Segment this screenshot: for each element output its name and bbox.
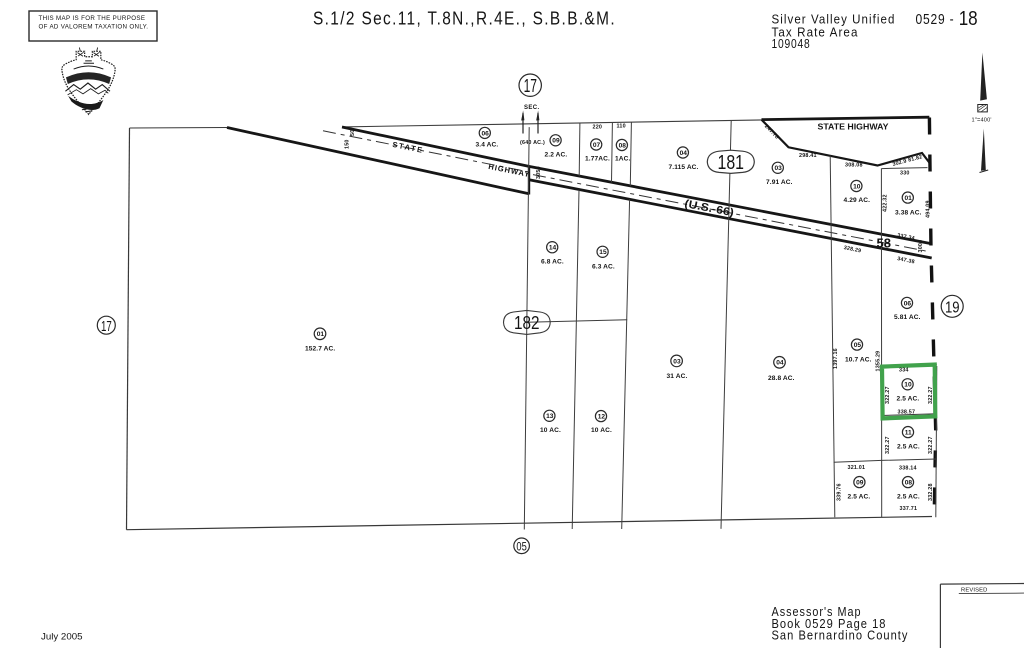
svg-text:15: 15: [599, 249, 607, 256]
svg-text:1397.16: 1397.16: [833, 348, 839, 369]
svg-text:109048: 109048: [772, 36, 811, 51]
svg-text:181: 181: [718, 151, 745, 174]
svg-text:05: 05: [854, 342, 862, 349]
svg-text:14: 14: [549, 245, 557, 252]
svg-text:7.91 AC.: 7.91 AC.: [766, 179, 793, 186]
svg-text:298.41: 298.41: [799, 153, 817, 159]
svg-text:2.5 AC.: 2.5 AC.: [848, 493, 871, 500]
svg-text:322.27: 322.27: [928, 436, 934, 454]
svg-text:4.29 AC.: 4.29 AC.: [844, 197, 871, 204]
svg-text:01: 01: [317, 331, 325, 338]
svg-text:11: 11: [905, 430, 912, 437]
svg-text:04: 04: [776, 360, 784, 367]
svg-text:5.81 AC.: 5.81 AC.: [894, 314, 921, 321]
svg-text:San Bernardino County: San Bernardino County: [772, 628, 909, 643]
svg-text:322.27: 322.27: [885, 436, 891, 454]
svg-text:7.115 AC.: 7.115 AC.: [669, 164, 699, 171]
svg-text:THIS MAP IS FOR THE PURPOSE: THIS MAP IS FOR THE PURPOSE: [39, 15, 146, 22]
svg-text:338.57: 338.57: [898, 410, 916, 416]
svg-text:17: 17: [101, 318, 112, 335]
svg-text:28.8 AC.: 28.8 AC.: [768, 375, 795, 382]
svg-text:06: 06: [904, 300, 912, 307]
svg-text:2.5 AC.: 2.5 AC.: [897, 395, 920, 402]
svg-text:182: 182: [514, 313, 540, 333]
svg-text:2.5 AC.: 2.5 AC.: [897, 443, 920, 450]
svg-text:339.76: 339.76: [837, 483, 843, 501]
svg-text:0529 -: 0529 -: [916, 11, 955, 28]
svg-text:04: 04: [680, 150, 688, 157]
svg-text:330: 330: [900, 171, 910, 177]
svg-text:50: 50: [350, 130, 356, 136]
svg-text:10 AC.: 10 AC.: [540, 427, 561, 434]
svg-text:321.01: 321.01: [848, 465, 866, 471]
svg-text:322.27: 322.27: [885, 386, 891, 404]
svg-text:1AC.: 1AC.: [615, 155, 630, 162]
svg-text:337.71: 337.71: [900, 506, 918, 512]
svg-text:17: 17: [524, 76, 537, 96]
svg-text:1.77AC.: 1.77AC.: [585, 155, 610, 162]
svg-text:338.14: 338.14: [899, 466, 917, 472]
svg-text:332.28: 332.28: [928, 483, 934, 501]
svg-text:6.3 AC.: 6.3 AC.: [592, 263, 615, 270]
svg-text:S.1/2 Sec.11, T.8N.,R.4E., S.B: S.1/2 Sec.11, T.8N.,R.4E., S.B.B.&M.: [313, 9, 616, 29]
svg-text:10.7 AC.: 10.7 AC.: [845, 356, 872, 363]
svg-text:3006: 3006: [918, 240, 924, 253]
svg-text:308.08: 308.08: [845, 163, 863, 169]
svg-text:1"=400': 1"=400': [972, 117, 992, 123]
svg-text:09: 09: [856, 480, 864, 487]
svg-text:06: 06: [482, 130, 490, 137]
svg-text:3050: 3050: [536, 166, 542, 179]
svg-text:152.7 AC.: 152.7 AC.: [305, 346, 335, 353]
svg-text:13: 13: [546, 413, 554, 420]
svg-text:10: 10: [853, 183, 861, 190]
svg-text:150: 150: [345, 139, 351, 149]
svg-text:STATE HIGHWAY: STATE HIGHWAY: [818, 123, 890, 132]
svg-text:110: 110: [617, 124, 626, 130]
svg-text:08: 08: [619, 142, 627, 149]
svg-text:18: 18: [959, 7, 978, 30]
svg-text:334: 334: [899, 368, 909, 374]
svg-text:REVISED: REVISED: [961, 587, 988, 593]
svg-text:494.09: 494.09: [926, 200, 932, 218]
svg-text:07: 07: [593, 142, 601, 149]
svg-text:OF AD VALOREM TAXATION ONLY.: OF AD VALOREM TAXATION ONLY.: [39, 24, 149, 31]
svg-text:2.5 AC.: 2.5 AC.: [897, 493, 920, 500]
svg-text:6.8 AC.: 6.8 AC.: [541, 258, 564, 265]
svg-text:03: 03: [775, 165, 783, 172]
svg-text:31 AC.: 31 AC.: [667, 373, 688, 380]
svg-text:58: 58: [877, 236, 891, 251]
svg-text:220: 220: [593, 125, 603, 131]
svg-text:09: 09: [552, 138, 560, 145]
svg-text:3.4 AC.: 3.4 AC.: [476, 142, 499, 149]
svg-text:SEC.: SEC.: [524, 105, 540, 111]
svg-text:2.2 AC.: 2.2 AC.: [545, 152, 568, 159]
svg-text:10: 10: [904, 382, 912, 389]
svg-text:12: 12: [598, 414, 606, 421]
svg-text:July 2005: July 2005: [41, 632, 83, 642]
svg-text:10 AC.: 10 AC.: [591, 427, 612, 434]
svg-text:19: 19: [945, 300, 960, 317]
svg-text:1355.29: 1355.29: [875, 351, 881, 372]
svg-text:03: 03: [673, 358, 681, 365]
svg-text:(640 AC.): (640 AC.): [520, 140, 545, 146]
svg-text:05: 05: [516, 539, 527, 553]
svg-text:08: 08: [905, 480, 913, 487]
svg-text:422.32: 422.32: [882, 194, 888, 212]
svg-text:01: 01: [905, 195, 913, 202]
svg-text:3.38 AC.: 3.38 AC.: [895, 210, 922, 217]
svg-text:322.27: 322.27: [928, 386, 934, 404]
